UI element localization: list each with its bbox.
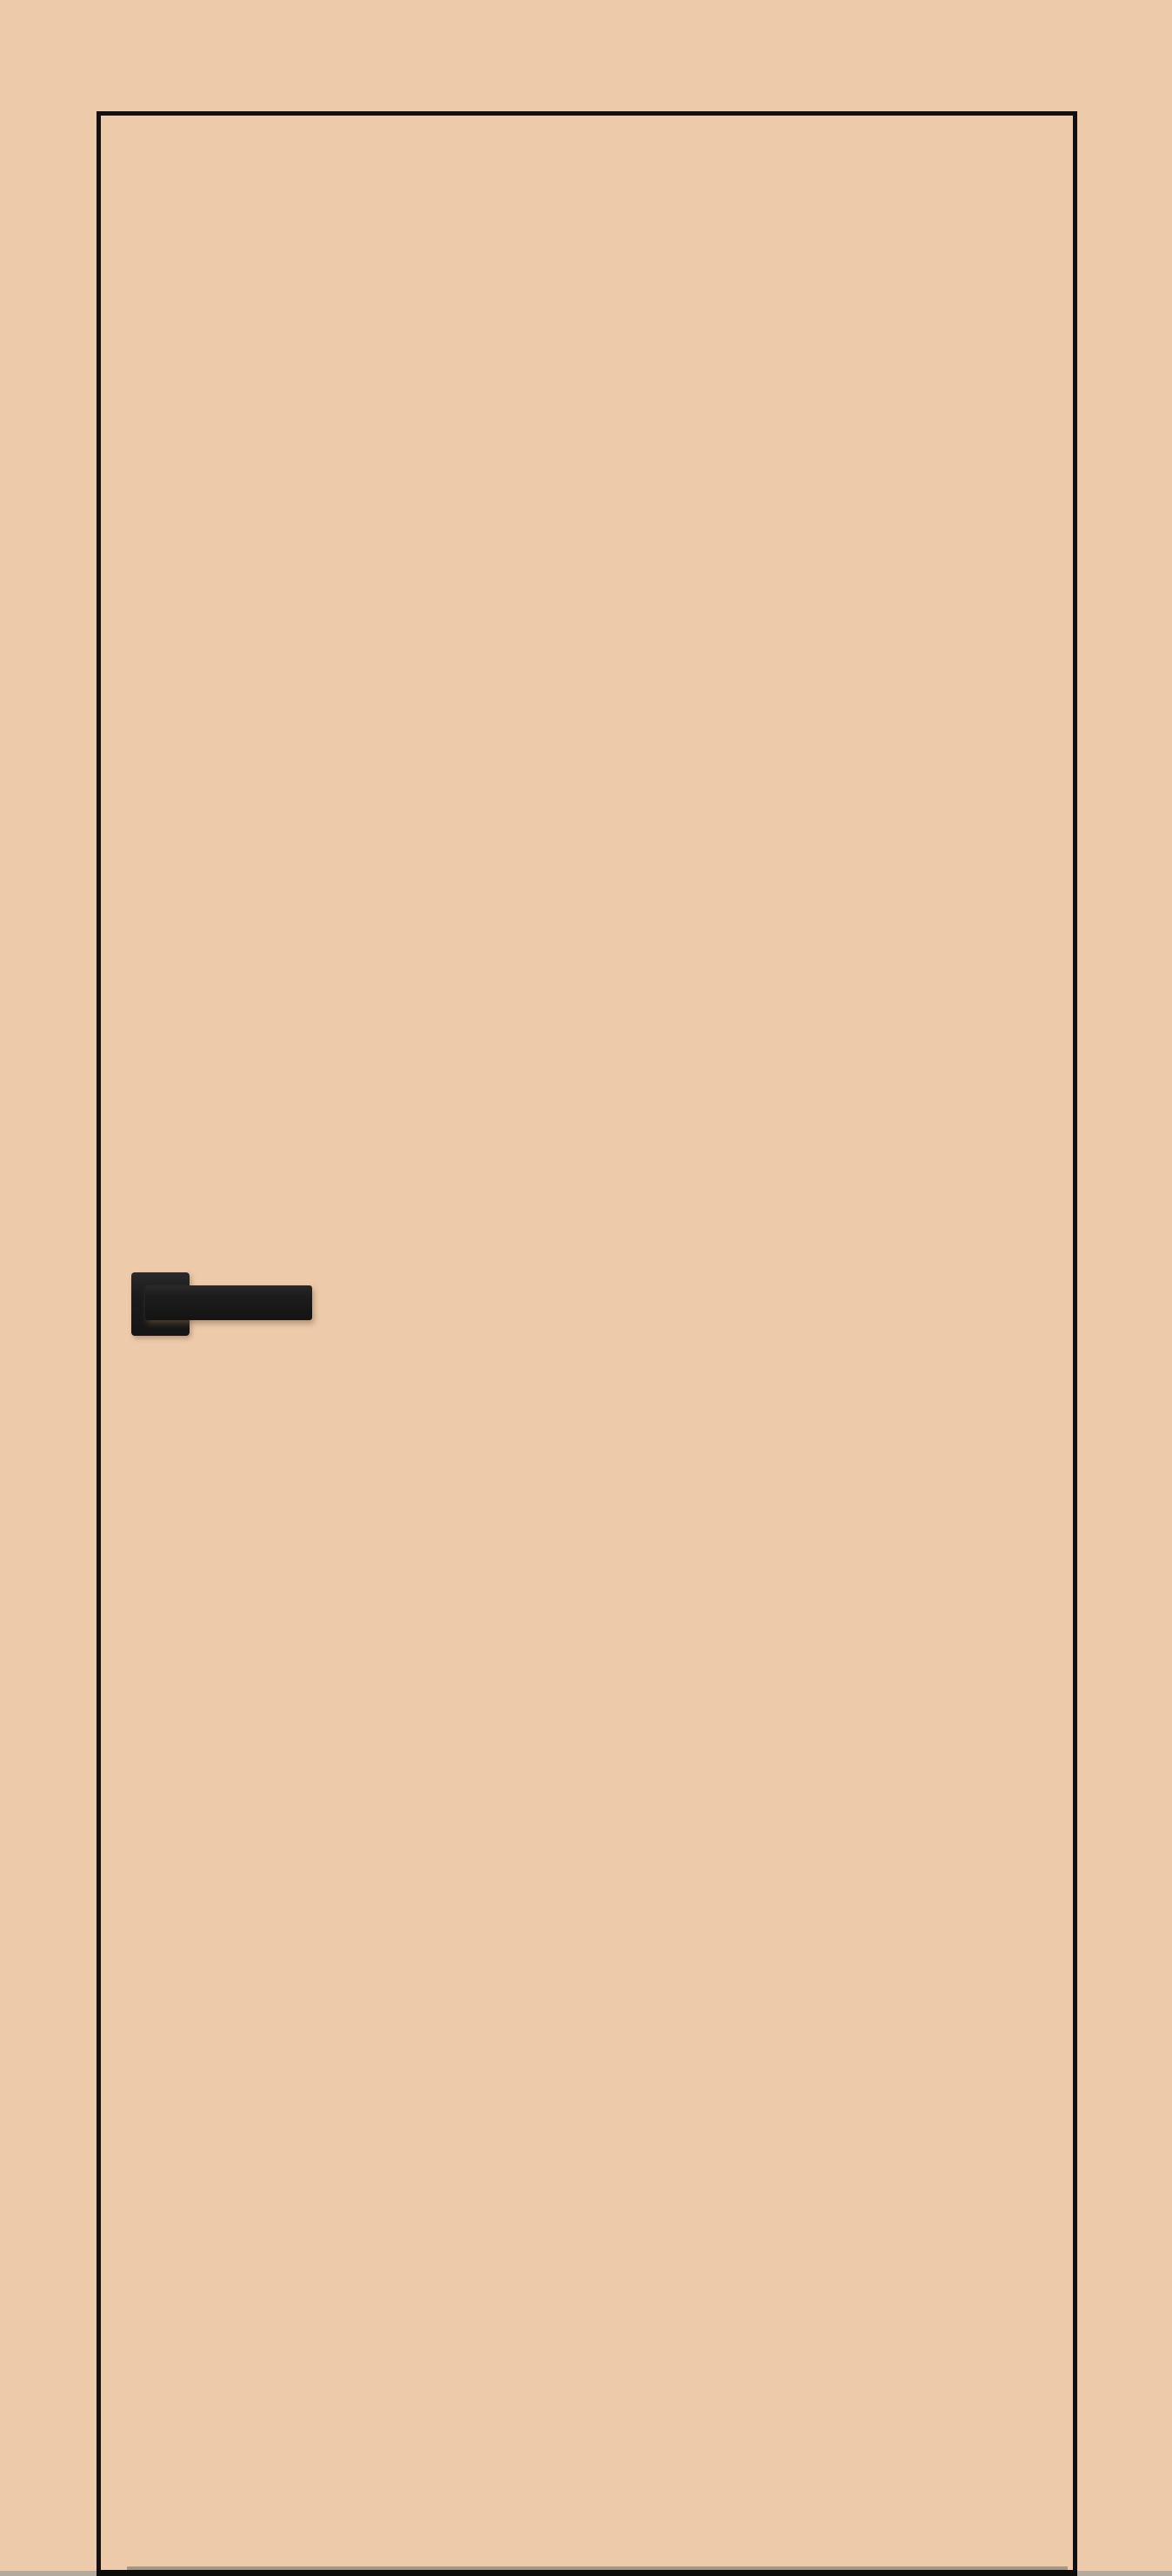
door-bottom-edge <box>97 2570 1077 2576</box>
floor-strip-right <box>1077 2571 1172 2576</box>
door-leaf <box>97 111 1077 2576</box>
handle-lever <box>145 1285 312 1320</box>
wall <box>0 0 1172 2576</box>
floor-strip-left <box>0 2571 97 2576</box>
